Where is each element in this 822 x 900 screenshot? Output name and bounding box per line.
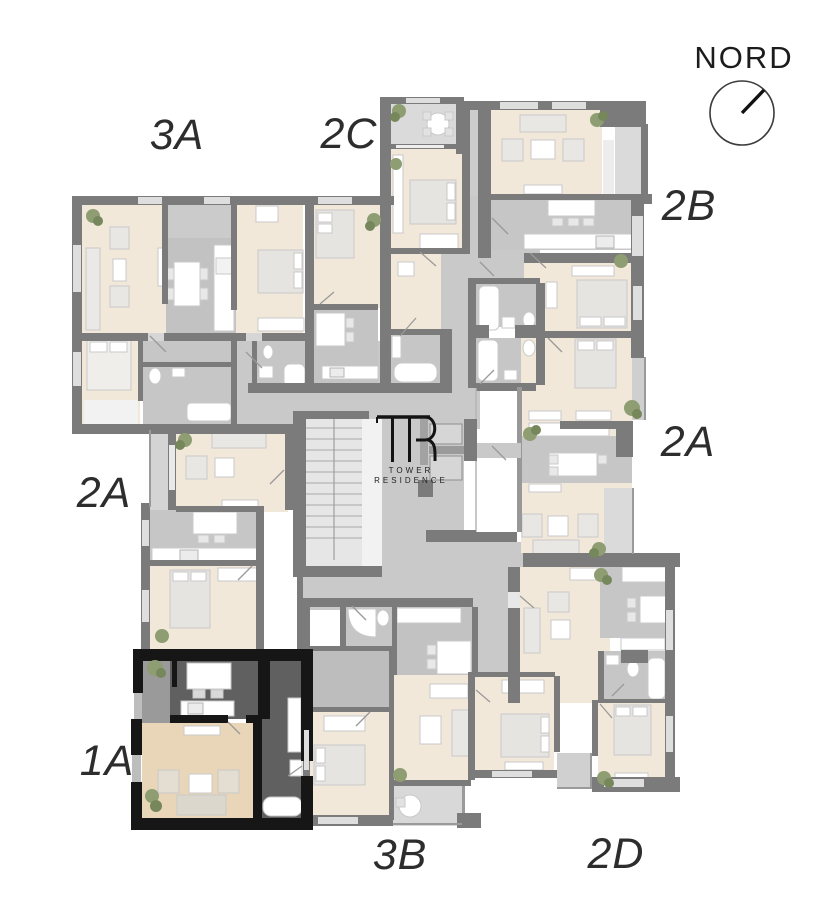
svg-text:1A: 1A xyxy=(80,737,135,785)
svg-text:2D: 2D xyxy=(587,830,645,878)
svg-text:3B: 3B xyxy=(373,831,428,879)
svg-text:2A: 2A xyxy=(76,469,132,517)
svg-text:3A: 3A xyxy=(150,111,205,159)
svg-text:2B: 2B xyxy=(661,182,717,230)
svg-text:2C: 2C xyxy=(320,110,378,158)
svg-text:2A: 2A xyxy=(660,418,716,466)
svg-text:NORD: NORD xyxy=(694,40,793,75)
svg-text:TOWER: TOWER xyxy=(389,466,434,475)
svg-text:RESIDENCE: RESIDENCE xyxy=(374,476,448,485)
